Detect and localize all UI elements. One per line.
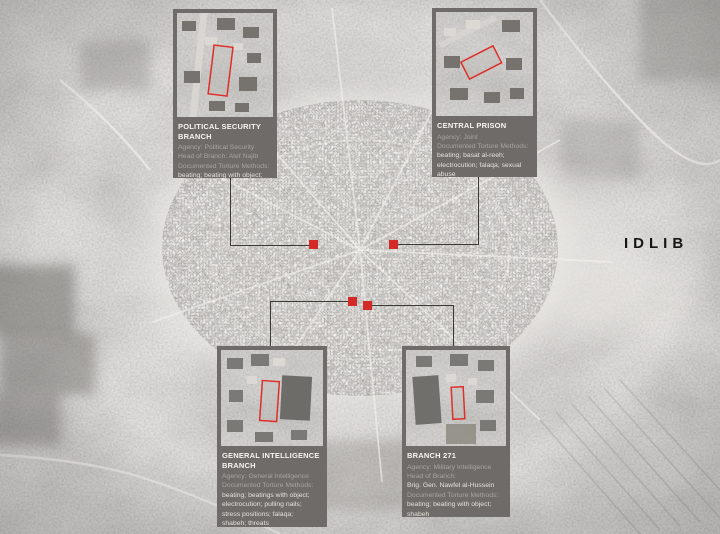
callout-body: Agency: Political SecurityHead of Branch… <box>178 143 272 178</box>
building-outline <box>451 387 465 420</box>
callout-title: BRANCH 271 <box>407 451 505 461</box>
callout-body-line: Agency: Joint <box>437 133 532 142</box>
callout-body-line: shabeh <box>407 510 505 517</box>
callout-body-line: Documented Torture Methods: <box>222 481 322 490</box>
callout-body: Agency: General IntelligenceDocumented T… <box>222 472 322 527</box>
callout-general-intelligence-branch: GENERAL INTELLIGENCE BRANCH Agency: Gene… <box>217 346 327 527</box>
general-intelligence-branch-marker <box>348 297 357 306</box>
callout-political-security-branch: POLITICAL SECURITY BRANCH Agency: Politi… <box>173 9 277 178</box>
callout-body-line: Head of Branch: <box>407 472 505 481</box>
callout-body: Agency: Military IntelligenceHead of Bra… <box>407 463 505 518</box>
connector-line <box>270 302 271 346</box>
connector-line <box>371 305 454 306</box>
callout-title: POLITICAL SECURITY BRANCH <box>178 122 272 141</box>
connector-line <box>478 177 479 245</box>
connector-line <box>230 245 312 246</box>
idlib-detention-map: IDLIB POLITICAL SECURITY BRANCH Agency: … <box>0 0 720 534</box>
callout-body-line: beating; beating with object; <box>407 500 505 509</box>
connector-line <box>270 301 352 302</box>
callout-title: CENTRAL PRISON <box>437 121 532 131</box>
city-label: IDLIB <box>624 235 688 252</box>
callout-body-line: Agency: Military Intelligence <box>407 463 505 472</box>
callout-body-line: beating; beatings with object; <box>222 491 322 500</box>
building-outline <box>260 380 280 421</box>
callout-body-line: beating; basat al-reeh; <box>437 151 532 160</box>
callout-body-line: stress positions; falaqa; <box>222 510 322 519</box>
political-security-branch-inset-image <box>177 13 273 117</box>
callout-body-line: Brig. Gen. Nawfel al-Hussein <box>407 481 505 490</box>
callout-body-line: shabeh; threats <box>222 519 322 527</box>
branch-271-inset-image <box>406 350 506 446</box>
callout-title: GENERAL INTELLIGENCE BRANCH <box>222 451 322 470</box>
callout-body: Agency: JointDocumented Torture Methods:… <box>437 133 532 178</box>
connector-line <box>397 244 479 245</box>
callout-branch-271: BRANCH 271 Agency: Military Intelligence… <box>402 346 510 517</box>
callout-body-line: Agency: General Intelligence <box>222 472 322 481</box>
callout-body-line: Documented Torture Methods: <box>437 142 532 151</box>
callout-body-line: electrocution; pulling nails; <box>222 500 322 509</box>
callout-body-line: beating; beating with object; <box>178 171 272 178</box>
central-prison-inset-image <box>436 12 533 116</box>
general-intelligence-branch-inset-image <box>221 350 323 446</box>
callout-body-line: abuse <box>437 170 532 177</box>
callout-body-line: Agency: Political Security <box>178 143 272 152</box>
political-security-branch-marker <box>309 240 318 249</box>
callout-central-prison: CENTRAL PRISON Agency: JointDocumented T… <box>432 8 537 177</box>
central-prison-marker <box>389 240 398 249</box>
callout-body-line: electrocution; falaqa; sexual <box>437 161 532 170</box>
callout-body-line: Head of Branch: Atef Najib <box>178 152 272 161</box>
connector-line <box>453 305 454 346</box>
callout-body-line: Documented Torture Methods: <box>407 491 505 500</box>
branch-271-marker <box>363 301 372 310</box>
connector-line <box>230 178 231 246</box>
satellite-map-image <box>0 0 720 534</box>
callout-body-line: Documented Torture Methods: <box>178 162 272 171</box>
